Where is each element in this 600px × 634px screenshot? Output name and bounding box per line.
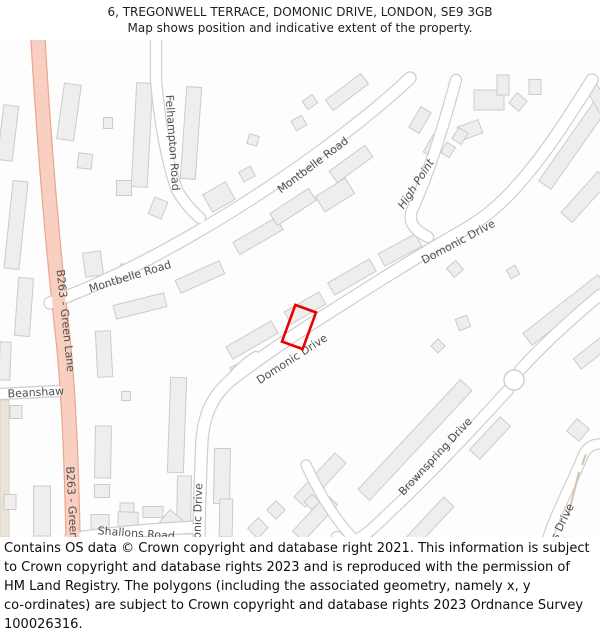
map-description: Map shows position and indicative extent…	[0, 20, 600, 36]
building	[95, 426, 112, 478]
os-map: B263 - Green LaneB263 - Green LaneBeansh…	[0, 40, 600, 537]
building	[247, 134, 259, 146]
building	[122, 392, 131, 401]
turning-circle	[504, 370, 524, 390]
building	[117, 181, 132, 196]
map-title-block: 6, TREGONWELL TERRACE, DOMONIC DRIVE, LO…	[0, 0, 600, 40]
building	[167, 377, 186, 473]
building	[34, 486, 51, 536]
footer-line: to Crown copyright and database rights 2…	[4, 558, 598, 577]
street-label-domonic-drive-south: Domonic Drive	[190, 483, 206, 537]
footer-line: co-ordinates) are subject to Crown copyr…	[4, 596, 598, 615]
building	[95, 331, 112, 378]
building	[10, 406, 22, 419]
building	[497, 75, 509, 95]
building	[77, 153, 92, 169]
building	[143, 507, 163, 518]
copyright-notice: Contains OS data © Crown copyright and d…	[0, 537, 600, 625]
building	[104, 118, 113, 129]
building	[219, 499, 233, 537]
footer-line: Contains OS data © Crown copyright and d…	[4, 539, 598, 558]
land-parcel	[0, 400, 9, 537]
building	[95, 485, 110, 498]
building	[82, 251, 103, 277]
property-address-title: 6, TREGONWELL TERRACE, DOMONIC DRIVE, LO…	[0, 4, 600, 20]
building	[4, 495, 16, 510]
building	[214, 448, 231, 503]
map-canvas: B263 - Green LaneB263 - Green LaneBeansh…	[0, 40, 600, 537]
building	[0, 342, 11, 380]
footer-line: HM Land Registry. The polygons (includin…	[4, 577, 598, 596]
building	[529, 80, 541, 95]
